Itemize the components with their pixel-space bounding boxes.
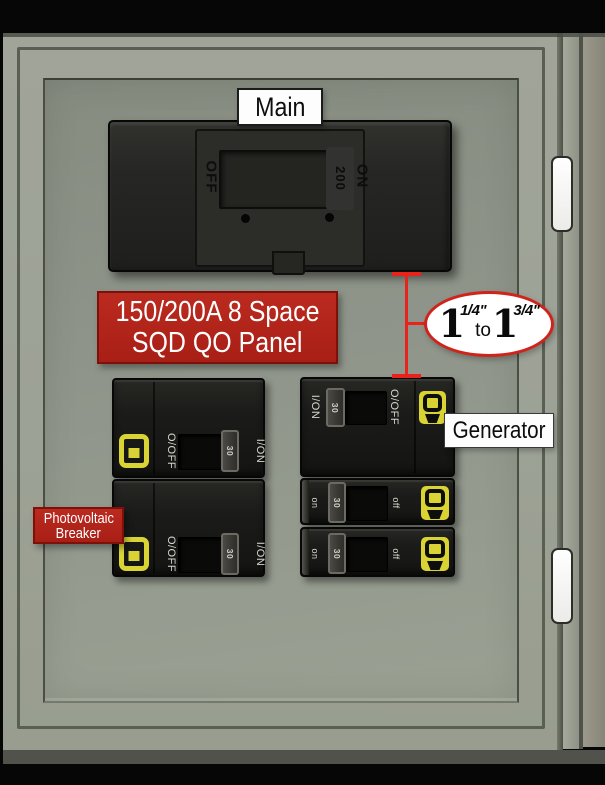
toggle-handle: 30 bbox=[221, 533, 239, 575]
main-breaker-faceplate: 200 OFF ON bbox=[195, 129, 365, 267]
breaker-right-middle: on 30 off bbox=[300, 478, 455, 525]
dimension-line bbox=[405, 273, 408, 378]
main-toggle-handle: 200 bbox=[326, 147, 354, 210]
dimension-cap-bottom bbox=[392, 374, 421, 378]
breaker-left-top: O/OFF 30 I/ON bbox=[112, 378, 265, 478]
breaker-edge bbox=[302, 480, 309, 523]
square-d-logo-icon bbox=[421, 486, 449, 520]
breaker-on-label: I/ON bbox=[254, 542, 266, 567]
square-d-core bbox=[129, 551, 140, 561]
main-rating-label: 200 bbox=[332, 166, 347, 191]
main-label-text: Main bbox=[255, 92, 305, 123]
panel-spec-label: 150/200A 8 Space SQD QO Panel bbox=[97, 291, 338, 364]
square-d-logo-icon bbox=[419, 391, 446, 424]
hinge-bottom-icon bbox=[551, 548, 573, 624]
main-breaker: 200 OFF ON bbox=[108, 120, 452, 272]
main-off-label: OFF bbox=[203, 161, 220, 194]
cabinet-outer-side bbox=[583, 33, 605, 747]
toggle-recess bbox=[345, 391, 387, 425]
electrical-panel-diagram: 200 OFF ON O/OFF 30 I/ON O/OFF 30 I/ bbox=[0, 0, 605, 785]
panel-spec-line1: 150/200A 8 Space bbox=[116, 297, 320, 328]
breaker-rating-label: 30 bbox=[225, 549, 235, 559]
square-d-ring bbox=[425, 540, 445, 558]
generator-label-text: Generator bbox=[453, 417, 546, 445]
square-d-feet bbox=[425, 414, 440, 423]
callout-frac2: 3/4" bbox=[513, 302, 539, 319]
breaker-right-bottom: on 30 off bbox=[300, 527, 455, 577]
breaker-off-label: O/OFF bbox=[165, 536, 177, 572]
hinge-top-icon bbox=[551, 156, 573, 232]
callout-to: to bbox=[475, 320, 491, 342]
breaker-seam bbox=[153, 483, 155, 573]
cabinet-side-strip bbox=[563, 33, 579, 749]
breaker-on-label: I/ON bbox=[254, 439, 266, 464]
knockout-notch bbox=[272, 251, 305, 275]
breaker-off-label: off bbox=[391, 497, 401, 508]
breaker-off-label: off bbox=[391, 548, 401, 559]
breaker-rating-label: 30 bbox=[332, 497, 342, 507]
square-d-feet bbox=[427, 510, 443, 519]
breaker-on-label: I/ON bbox=[309, 395, 321, 420]
square-d-ring bbox=[423, 394, 442, 412]
square-d-ring bbox=[425, 489, 445, 507]
toggle-handle: 30 bbox=[328, 533, 346, 574]
toggle-recess bbox=[346, 486, 388, 521]
breaker-on-label: on bbox=[310, 497, 320, 508]
square-d-logo-icon bbox=[421, 537, 449, 571]
breaker-seam bbox=[153, 382, 155, 474]
photovoltaic-label: Photovoltaic Breaker bbox=[33, 507, 124, 544]
toggle-handle: 30 bbox=[326, 388, 345, 427]
main-on-label: ON bbox=[354, 164, 371, 189]
dimension-callout: 1 1/4" to 1 3/4" bbox=[424, 291, 554, 357]
square-d-logo-icon bbox=[119, 434, 149, 468]
toggle-recess bbox=[346, 537, 388, 572]
callout-frac1: 1/4" bbox=[460, 302, 486, 319]
breaker-rating-label: 30 bbox=[332, 548, 342, 558]
breaker-left-bottom: O/OFF 30 I/ON bbox=[112, 479, 265, 577]
main-label: Main bbox=[237, 88, 323, 126]
breaker-generator: I/ON 30 O/OFF bbox=[300, 377, 455, 477]
square-d-core bbox=[129, 448, 140, 458]
breaker-off-label: O/OFF bbox=[165, 433, 177, 469]
breaker-on-label: on bbox=[310, 548, 320, 559]
breaker-edge bbox=[302, 529, 309, 575]
screw-icon bbox=[241, 214, 250, 223]
toggle-handle: 30 bbox=[221, 430, 239, 472]
photovoltaic-line1: Photovoltaic bbox=[43, 511, 113, 526]
breaker-seam bbox=[414, 381, 416, 473]
main-toggle-recess bbox=[219, 150, 338, 209]
generator-label: Generator bbox=[444, 413, 554, 448]
photovoltaic-line2: Breaker bbox=[56, 526, 101, 541]
screw-icon bbox=[325, 213, 334, 222]
toggle-handle: 30 bbox=[328, 482, 346, 523]
square-d-feet bbox=[427, 561, 443, 570]
cabinet-bottom-edge bbox=[3, 750, 605, 764]
breaker-rating-label: 30 bbox=[331, 402, 341, 412]
breaker-off-label: O/OFF bbox=[388, 389, 400, 425]
breaker-rating-label: 30 bbox=[225, 446, 235, 456]
panel-spec-line2: SQD QO Panel bbox=[132, 328, 302, 359]
